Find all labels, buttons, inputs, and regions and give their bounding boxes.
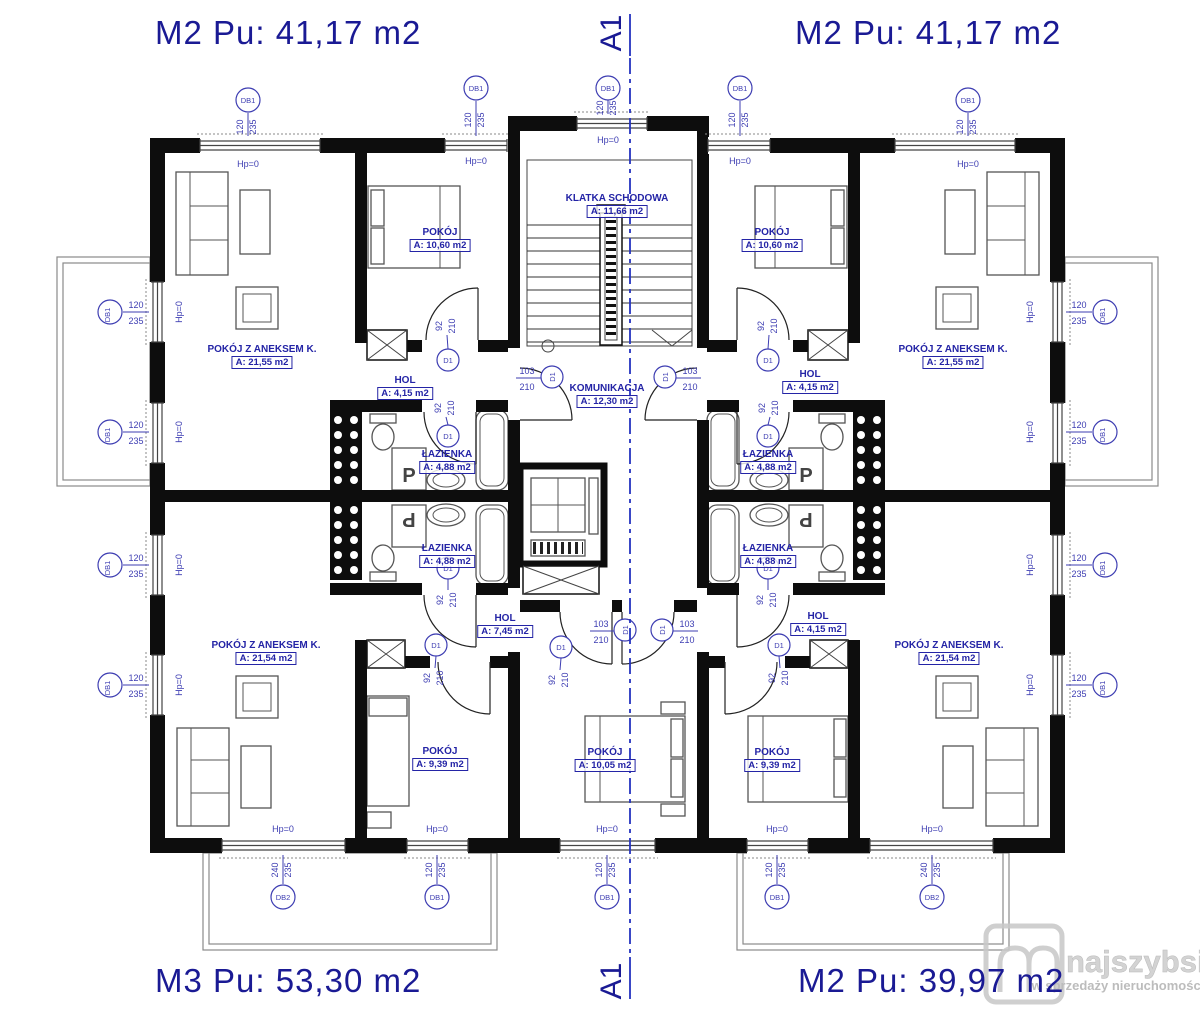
room-label-komunikacja: KOMUNIKACJA A: 12,30 m2 (570, 383, 645, 408)
marker-text: 92 (767, 673, 777, 683)
door-marker: D192210 (433, 400, 459, 447)
balcony-bottom-left (203, 853, 497, 950)
marker-text: 235 (1071, 436, 1086, 446)
table (943, 746, 973, 808)
marker-text: Hp=0 (174, 554, 184, 576)
marker-text: Hp=0 (174, 674, 184, 696)
window-marker: DB1120235Hp=0 (1025, 673, 1117, 699)
toilet (370, 545, 396, 581)
marker-text: 210 (769, 318, 779, 333)
marker-text: Hp=0 (174, 301, 184, 323)
marker-text: Hp=0 (465, 156, 487, 166)
table (240, 190, 270, 254)
bathtub (476, 410, 508, 490)
marker-text: 120 (594, 862, 604, 877)
room-label-tl-pokoj: POKÓJ A: 10,60 m2 (410, 227, 471, 252)
marker-text: 235 (777, 862, 787, 877)
marker-text: 92 (756, 321, 766, 331)
marker-text: DB1 (1098, 561, 1107, 576)
apartment-label-bottom-left: M3 Pu: 53,30 m2 (155, 962, 421, 1000)
marker-text: Hp=0 (921, 824, 943, 834)
sofa (987, 172, 1039, 275)
sink (750, 504, 788, 526)
toilet (819, 414, 845, 450)
washer-letter: P (402, 508, 415, 530)
marker-text: 235 (476, 112, 486, 127)
marker-text: 210 (519, 382, 534, 392)
armchair (236, 676, 278, 718)
marker-text: 103 (519, 366, 534, 376)
door-marker: D192210 (756, 318, 779, 371)
room-label-tr-living: POKÓJ Z ANEKSEM K. A: 21,55 m2 (898, 344, 1007, 369)
window-marker: DB1120235Hp=0 (98, 300, 184, 326)
marker-text: Hp=0 (426, 824, 448, 834)
marker-text: DB2 (276, 893, 291, 902)
marker-text: 92 (433, 403, 443, 413)
window (219, 837, 348, 858)
marker-text: D1 (443, 432, 453, 441)
window (442, 134, 510, 154)
marker-text: 120 (764, 862, 774, 877)
door-marker: D192210 (757, 400, 780, 447)
bathtub (707, 505, 739, 585)
marker-text: D1 (658, 625, 667, 635)
marker-text: DB1 (961, 96, 976, 105)
marker-text: 92 (422, 673, 432, 683)
marker-text: 120 (1071, 553, 1086, 563)
marker-text: DB1 (1098, 308, 1107, 323)
marker-text: 120 (595, 100, 605, 115)
marker-text: 235 (128, 436, 143, 446)
apartment-label-bottom-right: M2 Pu: 39,97 m2 (798, 962, 1064, 1000)
toilet (819, 545, 845, 581)
window (867, 837, 996, 858)
bathtub (476, 505, 508, 585)
room-label-br-living: POKÓJ Z ANEKSEM K. A: 21,54 m2 (894, 640, 1003, 665)
marker-text: 120 (1071, 300, 1086, 310)
marker-text: 103 (593, 619, 608, 629)
marker-text: 210 (593, 635, 608, 645)
room-label-tr-hol: HOL A: 4,15 m2 (782, 369, 838, 394)
marker-text: D1 (556, 643, 566, 652)
marker-text: 120 (128, 300, 143, 310)
marker-text: 235 (932, 862, 942, 877)
marker-text: 210 (446, 400, 456, 415)
table (241, 746, 271, 808)
balcony-right (1065, 257, 1158, 486)
sink (427, 504, 465, 526)
armchair (936, 287, 978, 329)
door-marker: D1103210 (651, 619, 698, 645)
apartment-label-top-right: M2 Pu: 41,17 m2 (795, 14, 1061, 52)
marker-text: DB1 (103, 428, 112, 443)
marker-text: D1 (763, 432, 773, 441)
room-label-bl-pokoj: POKÓJ A: 9,39 m2 (412, 746, 468, 771)
room-label-tl-lazienka: ŁAZIENKA A: 4,88 m2 (419, 449, 475, 474)
window-marker: DB1120235Hp=0 (595, 76, 620, 145)
marker-text: 210 (679, 635, 694, 645)
marker-text: 120 (424, 862, 434, 877)
marker-text: 210 (780, 670, 790, 685)
marker-text: Hp=0 (957, 159, 979, 169)
marker-text: 120 (955, 119, 965, 134)
marker-text: 120 (1071, 673, 1086, 683)
room-label-br-pokoj: POKÓJ A: 9,39 m2 (744, 747, 800, 772)
window-marker: DB2240235Hp=0 (919, 824, 944, 909)
room-label-br-hol: HOL A: 4,15 m2 (790, 611, 846, 636)
window-marker: DB1120235Hp=0 (98, 553, 184, 579)
marker-text: 235 (1071, 569, 1086, 579)
floor-plan-page: { "apartment_labels": { "top_left": "M2 … (0, 0, 1200, 1009)
bathtub (707, 410, 739, 490)
marker-text: 235 (607, 862, 617, 877)
section-label-top: A1 (595, 15, 629, 52)
marker-text: 120 (463, 112, 473, 127)
marker-text: 210 (560, 672, 570, 687)
window-marker: DB1120235Hp=0 (98, 420, 184, 446)
watermark-brand: najszybsi (1066, 944, 1200, 979)
marker-text: Hp=0 (729, 156, 751, 166)
marker-text: 235 (1071, 316, 1086, 326)
marker-text: Hp=0 (597, 135, 619, 145)
marker-text: 120 (128, 553, 143, 563)
room-label-tl-hol: HOL A: 4,15 m2 (377, 375, 433, 400)
marker-text: 120 (727, 112, 737, 127)
apartment-label-top-left: M2 Pu: 41,17 m2 (155, 14, 421, 52)
room-label-tl-living: POKÓJ Z ANEKSEM K. A: 21,55 m2 (207, 344, 316, 369)
marker-text: DB1 (469, 84, 484, 93)
washer-letter: P (799, 508, 812, 530)
marker-text: 235 (608, 100, 618, 115)
sofa (177, 728, 229, 826)
window (557, 837, 658, 858)
window-marker: DB1120235Hp=0 (764, 824, 789, 909)
window-marker: DB1120235Hp=0 (235, 88, 260, 169)
marker-text: D1 (431, 641, 441, 650)
door-marker: D1103210 (654, 366, 701, 392)
single-bed (367, 696, 409, 828)
window (197, 134, 323, 154)
marker-text: Hp=0 (1025, 421, 1035, 443)
window (705, 134, 773, 154)
room-label-bc-pokoj: POKÓJ A: 10,05 m2 (575, 747, 636, 772)
marker-text: DB1 (601, 84, 616, 93)
marker-text: DB1 (241, 96, 256, 105)
toilet (370, 414, 396, 450)
marker-text: DB1 (1098, 681, 1107, 696)
staircase (527, 160, 692, 352)
balcony-left (57, 257, 150, 486)
sofa (986, 728, 1038, 826)
door-marker: D192210 (547, 636, 572, 688)
marker-text: DB2 (925, 893, 940, 902)
marker-text: 92 (547, 675, 557, 685)
window (744, 837, 811, 858)
marker-text: 120 (128, 673, 143, 683)
marker-text: DB1 (103, 681, 112, 696)
marker-text: Hp=0 (1025, 554, 1035, 576)
marker-text: 235 (128, 316, 143, 326)
marker-text: 235 (1071, 689, 1086, 699)
window (146, 400, 166, 466)
marker-text: 235 (437, 862, 447, 877)
marker-text: D1 (443, 356, 453, 365)
marker-text: 210 (448, 592, 458, 607)
table (945, 190, 975, 254)
window-marker: DB1120235Hp=0 (1025, 300, 1117, 326)
armchair (236, 287, 278, 329)
washer-letter: P (402, 465, 415, 487)
floor-plan-stage: P P P P (0, 0, 1200, 1009)
window-marker: DB1120235Hp=0 (1025, 420, 1117, 446)
window-marker: DB1120235Hp=0 (594, 824, 619, 909)
marker-text: DB1 (600, 893, 615, 902)
armchair (936, 676, 978, 718)
window-marker: DB1120235Hp=0 (955, 88, 980, 169)
marker-text: Hp=0 (1025, 674, 1035, 696)
room-label-tr-pokoj: POKÓJ A: 10,60 m2 (742, 227, 803, 252)
marker-text: 235 (128, 689, 143, 699)
marker-text: DB1 (770, 893, 785, 902)
marker-text: DB1 (1098, 428, 1107, 443)
section-label-bottom: A1 (595, 963, 629, 1000)
marker-text: Hp=0 (766, 824, 788, 834)
marker-text: DB1 (430, 893, 445, 902)
marker-text: 210 (768, 592, 778, 607)
window (404, 837, 471, 858)
room-label-klatka: KLATKA SCHODOWA A: 11,66 m2 (566, 193, 669, 218)
window-marker: DB2240235Hp=0 (270, 824, 295, 909)
window-marker: DB1120235Hp=0 (424, 824, 449, 909)
room-label-bl-living: POKÓJ Z ANEKSEM K. A: 21,54 m2 (211, 640, 320, 665)
floor-plan-svg: P P P P (0, 0, 1200, 1009)
marker-text: 92 (757, 403, 767, 413)
sofa (176, 172, 228, 275)
marker-text: Hp=0 (272, 824, 294, 834)
marker-text: Hp=0 (237, 159, 259, 169)
room-label-bl-hol: HOL A: 7,45 m2 (477, 613, 533, 638)
room-label-tr-lazienka: ŁAZIENKA A: 4,88 m2 (740, 449, 796, 474)
marker-text: 210 (435, 670, 445, 685)
door-marker: D1103210 (516, 366, 563, 392)
marker-text: 210 (770, 400, 780, 415)
window-marker: DB1120235Hp=0 (1025, 553, 1117, 579)
marker-text: D1 (661, 372, 670, 382)
room-label-bl-lazienka: ŁAZIENKA A: 4,88 m2 (419, 543, 475, 568)
marker-text: 103 (682, 366, 697, 376)
window (892, 134, 1018, 154)
marker-text: 92 (434, 321, 444, 331)
marker-text: DB1 (103, 561, 112, 576)
marker-text: 120 (128, 420, 143, 430)
marker-text: 92 (435, 595, 445, 605)
marker-text: 235 (740, 112, 750, 127)
marker-text: DB1 (103, 308, 112, 323)
marker-text: Hp=0 (596, 824, 618, 834)
marker-text: 120 (1071, 420, 1086, 430)
marker-text: 235 (128, 569, 143, 579)
room-label-br-lazienka: ŁAZIENKA A: 4,88 m2 (740, 543, 796, 568)
marker-text: Hp=0 (174, 421, 184, 443)
marker-text: Hp=0 (1025, 301, 1035, 323)
window (1049, 400, 1070, 466)
marker-text: 210 (447, 318, 457, 333)
marker-text: D1 (774, 641, 784, 650)
marker-text: 235 (283, 862, 293, 877)
elevator (520, 466, 604, 564)
marker-text: 210 (682, 382, 697, 392)
marker-text: 120 (235, 119, 245, 134)
marker-text: 103 (679, 619, 694, 629)
marker-text: D1 (763, 356, 773, 365)
window-marker: DB1120235Hp=0 (98, 673, 184, 699)
marker-text: D1 (621, 625, 630, 635)
marker-text: 235 (968, 119, 978, 134)
door-marker: D192210 (434, 318, 459, 371)
washer-letter: P (799, 465, 812, 487)
marker-text: D1 (548, 372, 557, 382)
marker-text: 235 (248, 119, 258, 134)
marker-text: 92 (755, 595, 765, 605)
marker-text: 240 (270, 862, 280, 877)
marker-text: DB1 (733, 84, 748, 93)
marker-text: 240 (919, 862, 929, 877)
